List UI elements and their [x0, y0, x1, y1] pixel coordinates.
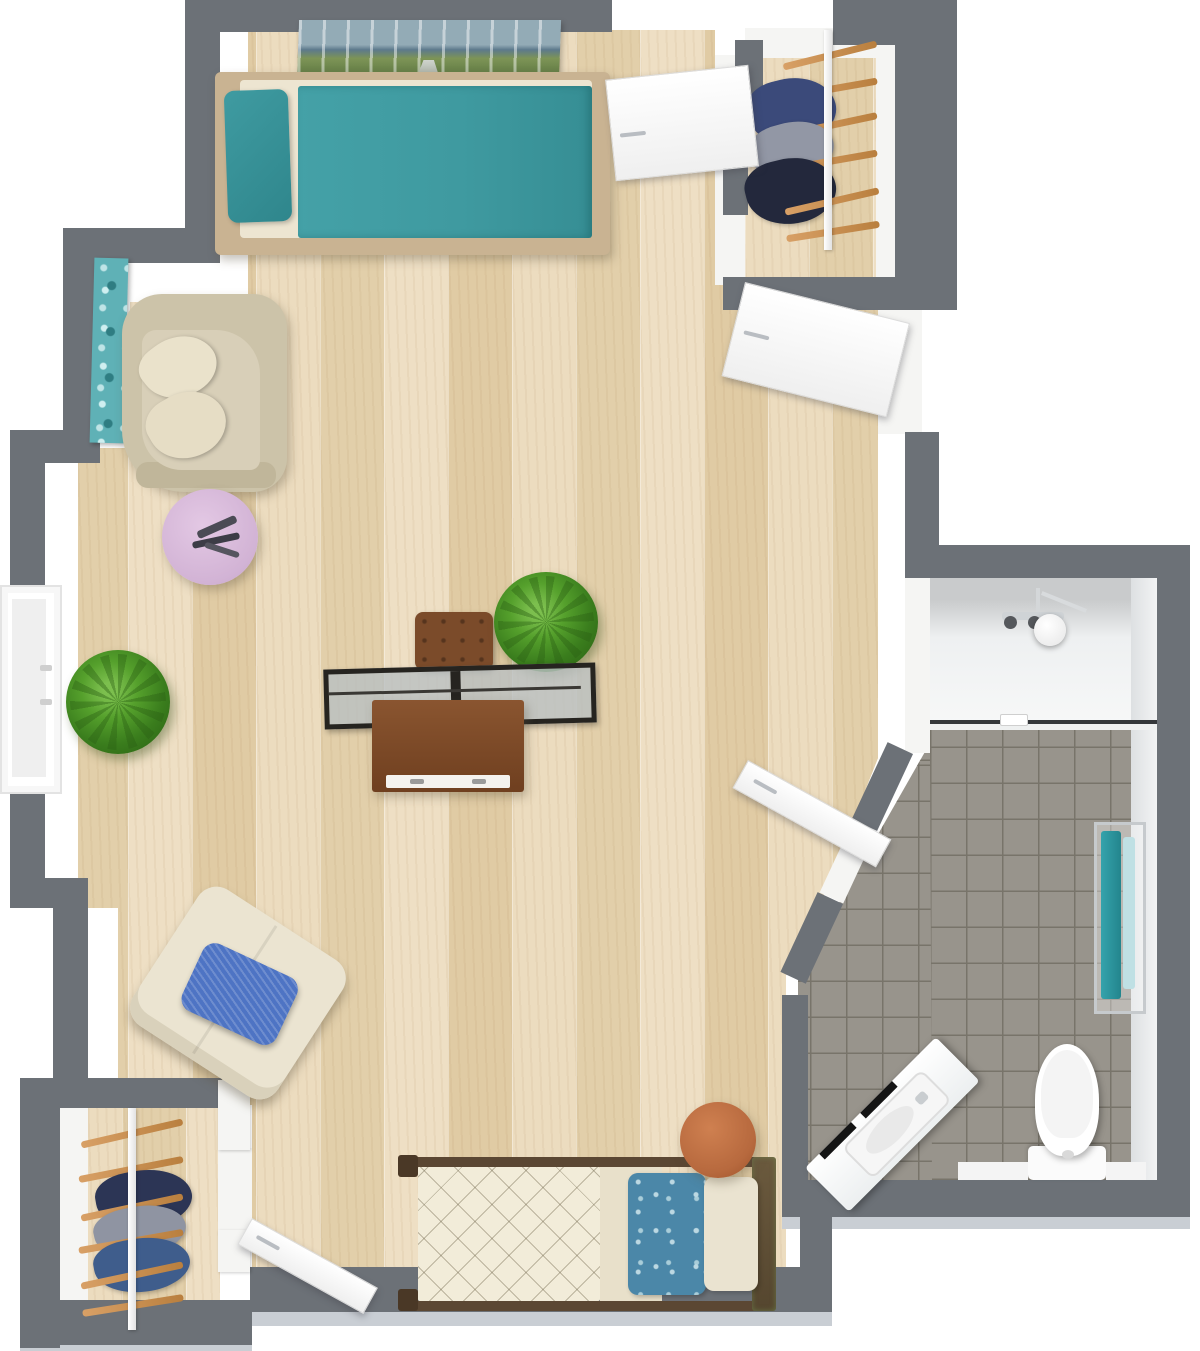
cabinet-drawer: [386, 775, 510, 788]
bed2-cream-pillow: [704, 1177, 758, 1291]
shower-head-light: [1034, 614, 1066, 646]
plant-leaves: [70, 654, 166, 750]
toilet-button: [1062, 1150, 1074, 1159]
towel-rack: [1094, 822, 1146, 1014]
wall-left-4: [10, 778, 45, 890]
bevel-bathroom-bottom: [782, 1217, 1190, 1229]
bed2-post-tl: [398, 1155, 418, 1177]
wall-bathroom-top: [905, 545, 1190, 578]
hanger: [786, 221, 880, 243]
window-handle-2: [40, 699, 52, 705]
shower-door-handle: [1000, 714, 1028, 726]
floor-plant: [66, 650, 170, 754]
toilet: [1028, 1044, 1106, 1180]
bath-baseboard-right: [1106, 1162, 1146, 1180]
wall-left-step3: [10, 878, 88, 908]
wall-closet-bl-left: [20, 1078, 60, 1348]
entry-door: [605, 65, 759, 181]
towel-teal: [1101, 831, 1121, 999]
shower-knob-left: [1004, 616, 1017, 629]
closet-rod: [128, 1108, 136, 1330]
wall-bathroom-right: [1157, 545, 1190, 1217]
wall-left-3: [10, 430, 45, 600]
window-pane: [12, 599, 46, 777]
closet-bl-rack: [68, 1108, 238, 1333]
closet-tr-rack: [740, 30, 910, 260]
bevel-bottom-main: [250, 1312, 832, 1326]
door-handle: [753, 779, 778, 795]
bed-teal-pillow: [224, 89, 293, 223]
drawer-handle-left: [410, 779, 424, 784]
bed2-quilt: [418, 1167, 600, 1301]
sofa: [122, 294, 287, 492]
bath-baseboard-left: [958, 1162, 1028, 1180]
lounge-blue-cushion: [177, 939, 303, 1050]
wall-right-mid: [905, 432, 939, 548]
desk-cabinet: [372, 700, 524, 792]
terracotta-stool: [680, 1102, 756, 1178]
window: [0, 585, 62, 794]
bed-quilt-group: [398, 1155, 778, 1313]
bed2-floral-pillow: [628, 1173, 706, 1295]
door-handle: [743, 330, 769, 340]
closet-rod: [824, 30, 832, 250]
bed2-post-bl: [398, 1289, 418, 1311]
door-handle: [256, 1235, 281, 1251]
bed-teal-duvet: [298, 86, 592, 238]
bathroom-left-face: [905, 578, 930, 753]
toilet-lid: [1041, 1050, 1093, 1138]
desk-plant: [494, 572, 598, 672]
bed2-rail-bottom: [406, 1301, 762, 1311]
table-sculpture-3: [204, 542, 240, 559]
window-handle: [40, 665, 52, 671]
wall-divider-se: [782, 995, 808, 1185]
floor-plan-canvas: [0, 0, 1200, 1351]
drawer-handle-right: [472, 779, 486, 784]
desk-chair: [415, 612, 493, 670]
shower-floor: [930, 578, 1157, 726]
shower-glass-curb: [930, 724, 1157, 730]
wall-left-5: [53, 905, 88, 1085]
towel-light: [1123, 837, 1135, 989]
lavender-table: [162, 489, 258, 585]
sink-faucet: [914, 1090, 930, 1106]
door-handle: [620, 131, 646, 138]
plant-leaves: [498, 576, 594, 668]
